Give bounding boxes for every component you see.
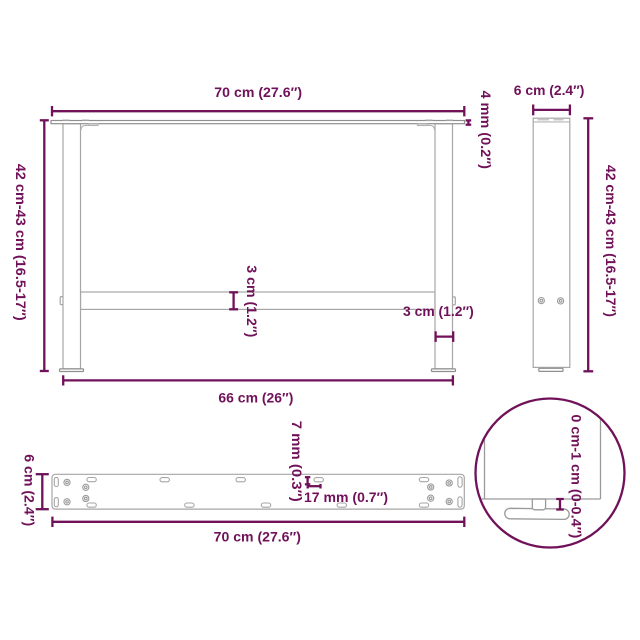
svg-text:70 cm (27.6″): 70 cm (27.6″)	[214, 529, 301, 545]
svg-text:6 cm (2.4″): 6 cm (2.4″)	[514, 82, 585, 98]
svg-text:3 cm (1.2″): 3 cm (1.2″)	[244, 265, 260, 337]
svg-text:42 cm-43 cm (16.5-17″): 42 cm-43 cm (16.5-17″)	[13, 164, 29, 321]
svg-text:17 mm (0.7″): 17 mm (0.7″)	[304, 489, 388, 505]
svg-text:3 cm (1.2″): 3 cm (1.2″)	[403, 303, 474, 319]
svg-text:66 cm (26″): 66 cm (26″)	[218, 389, 293, 405]
svg-text:6 cm (2.4″): 6 cm (2.4″)	[22, 454, 38, 526]
svg-text:7 mm (0.3″): 7 mm (0.3″)	[289, 421, 305, 502]
svg-text:70 cm (27.6″): 70 cm (27.6″)	[214, 84, 302, 100]
svg-text:4 mm (0.2″): 4 mm (0.2″)	[478, 90, 494, 169]
svg-text:42 cm-43 cm (16.5-17″): 42 cm-43 cm (16.5-17″)	[603, 165, 619, 317]
svg-text:0 cm-1 cm (0-0.4″): 0 cm-1 cm (0-0.4″)	[568, 414, 584, 538]
